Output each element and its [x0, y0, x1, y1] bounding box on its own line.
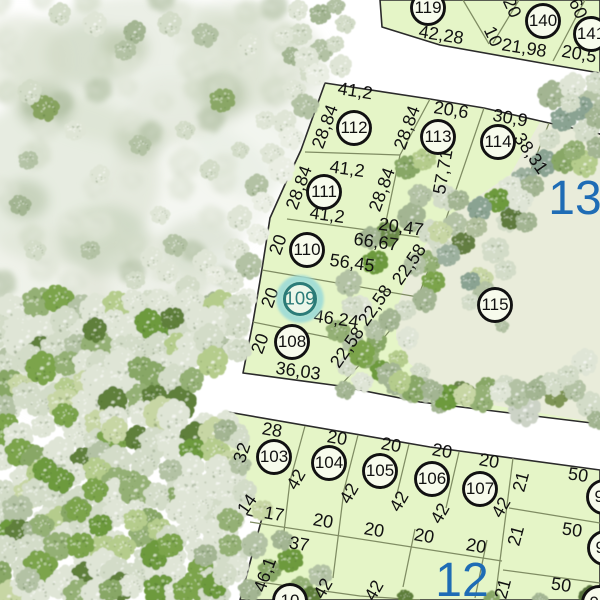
svg-text:10: 10 [281, 591, 300, 600]
svg-text:113: 113 [424, 127, 451, 146]
svg-text:20: 20 [380, 433, 403, 456]
svg-text:107: 107 [466, 479, 494, 498]
svg-text:50: 50 [561, 518, 584, 541]
svg-text:17: 17 [263, 502, 286, 525]
svg-text:111: 111 [311, 182, 337, 201]
svg-text:20: 20 [465, 534, 488, 557]
svg-text:96: 96 [595, 487, 600, 506]
svg-text:108: 108 [278, 332, 306, 351]
svg-text:115: 115 [481, 295, 508, 314]
svg-text:50: 50 [567, 463, 590, 486]
svg-text:37: 37 [288, 532, 311, 555]
svg-text:20: 20 [478, 449, 501, 472]
svg-text:104: 104 [315, 453, 343, 472]
svg-text:112: 112 [340, 118, 367, 137]
svg-text:28: 28 [261, 418, 284, 441]
svg-text:20: 20 [431, 439, 454, 462]
svg-text:119: 119 [414, 0, 441, 17]
svg-text:20: 20 [363, 518, 386, 541]
svg-text:20: 20 [312, 509, 335, 532]
svg-text:105: 105 [366, 461, 394, 480]
svg-text:98: 98 [590, 593, 600, 600]
svg-text:109: 109 [285, 287, 316, 308]
svg-text:13: 13 [548, 172, 600, 225]
svg-text:141: 141 [577, 24, 600, 43]
svg-text:20: 20 [326, 426, 349, 449]
svg-text:97: 97 [596, 538, 600, 557]
svg-text:106: 106 [418, 469, 446, 488]
svg-text:140: 140 [529, 11, 557, 30]
svg-text:20: 20 [413, 524, 436, 547]
svg-text:50: 50 [550, 573, 573, 596]
svg-text:114: 114 [484, 132, 511, 151]
svg-text:110: 110 [293, 240, 320, 259]
svg-text:103: 103 [260, 447, 288, 466]
svg-text:12: 12 [435, 554, 488, 600]
